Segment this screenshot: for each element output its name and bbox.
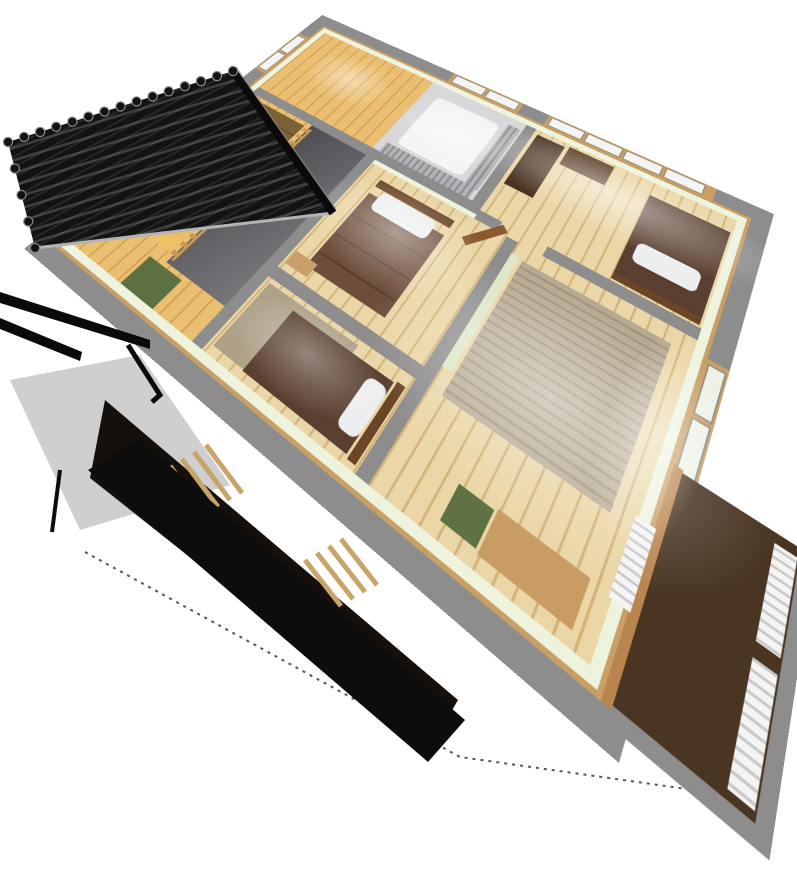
tile-end bbox=[20, 132, 29, 141]
floorplan-render-page: { "image": { "kind": "3d-cutaway-floorpl… bbox=[0, 0, 797, 797]
gutter-bracket bbox=[128, 345, 160, 402]
tile-end bbox=[228, 66, 237, 75]
tile-end bbox=[116, 102, 125, 111]
eave-board bbox=[0, 318, 82, 361]
tile-end bbox=[30, 243, 39, 252]
eave-board bbox=[0, 292, 150, 349]
tile-end bbox=[24, 217, 33, 226]
tile-end bbox=[84, 112, 93, 121]
tile-end bbox=[68, 117, 77, 126]
tile-end bbox=[164, 87, 173, 96]
tile-end bbox=[100, 107, 109, 116]
tile-end bbox=[132, 97, 141, 106]
roof-layer bbox=[0, 0, 797, 797]
tile-end bbox=[36, 127, 45, 136]
tile-end bbox=[3, 137, 12, 146]
tile-end bbox=[180, 82, 189, 91]
tile-end bbox=[148, 92, 157, 101]
pent-roof-tile-columns bbox=[8, 71, 333, 248]
tile-end bbox=[17, 190, 26, 199]
tile-end bbox=[10, 164, 19, 173]
tile-end bbox=[52, 122, 61, 131]
tile-end bbox=[212, 72, 221, 81]
tile-end bbox=[196, 77, 205, 86]
